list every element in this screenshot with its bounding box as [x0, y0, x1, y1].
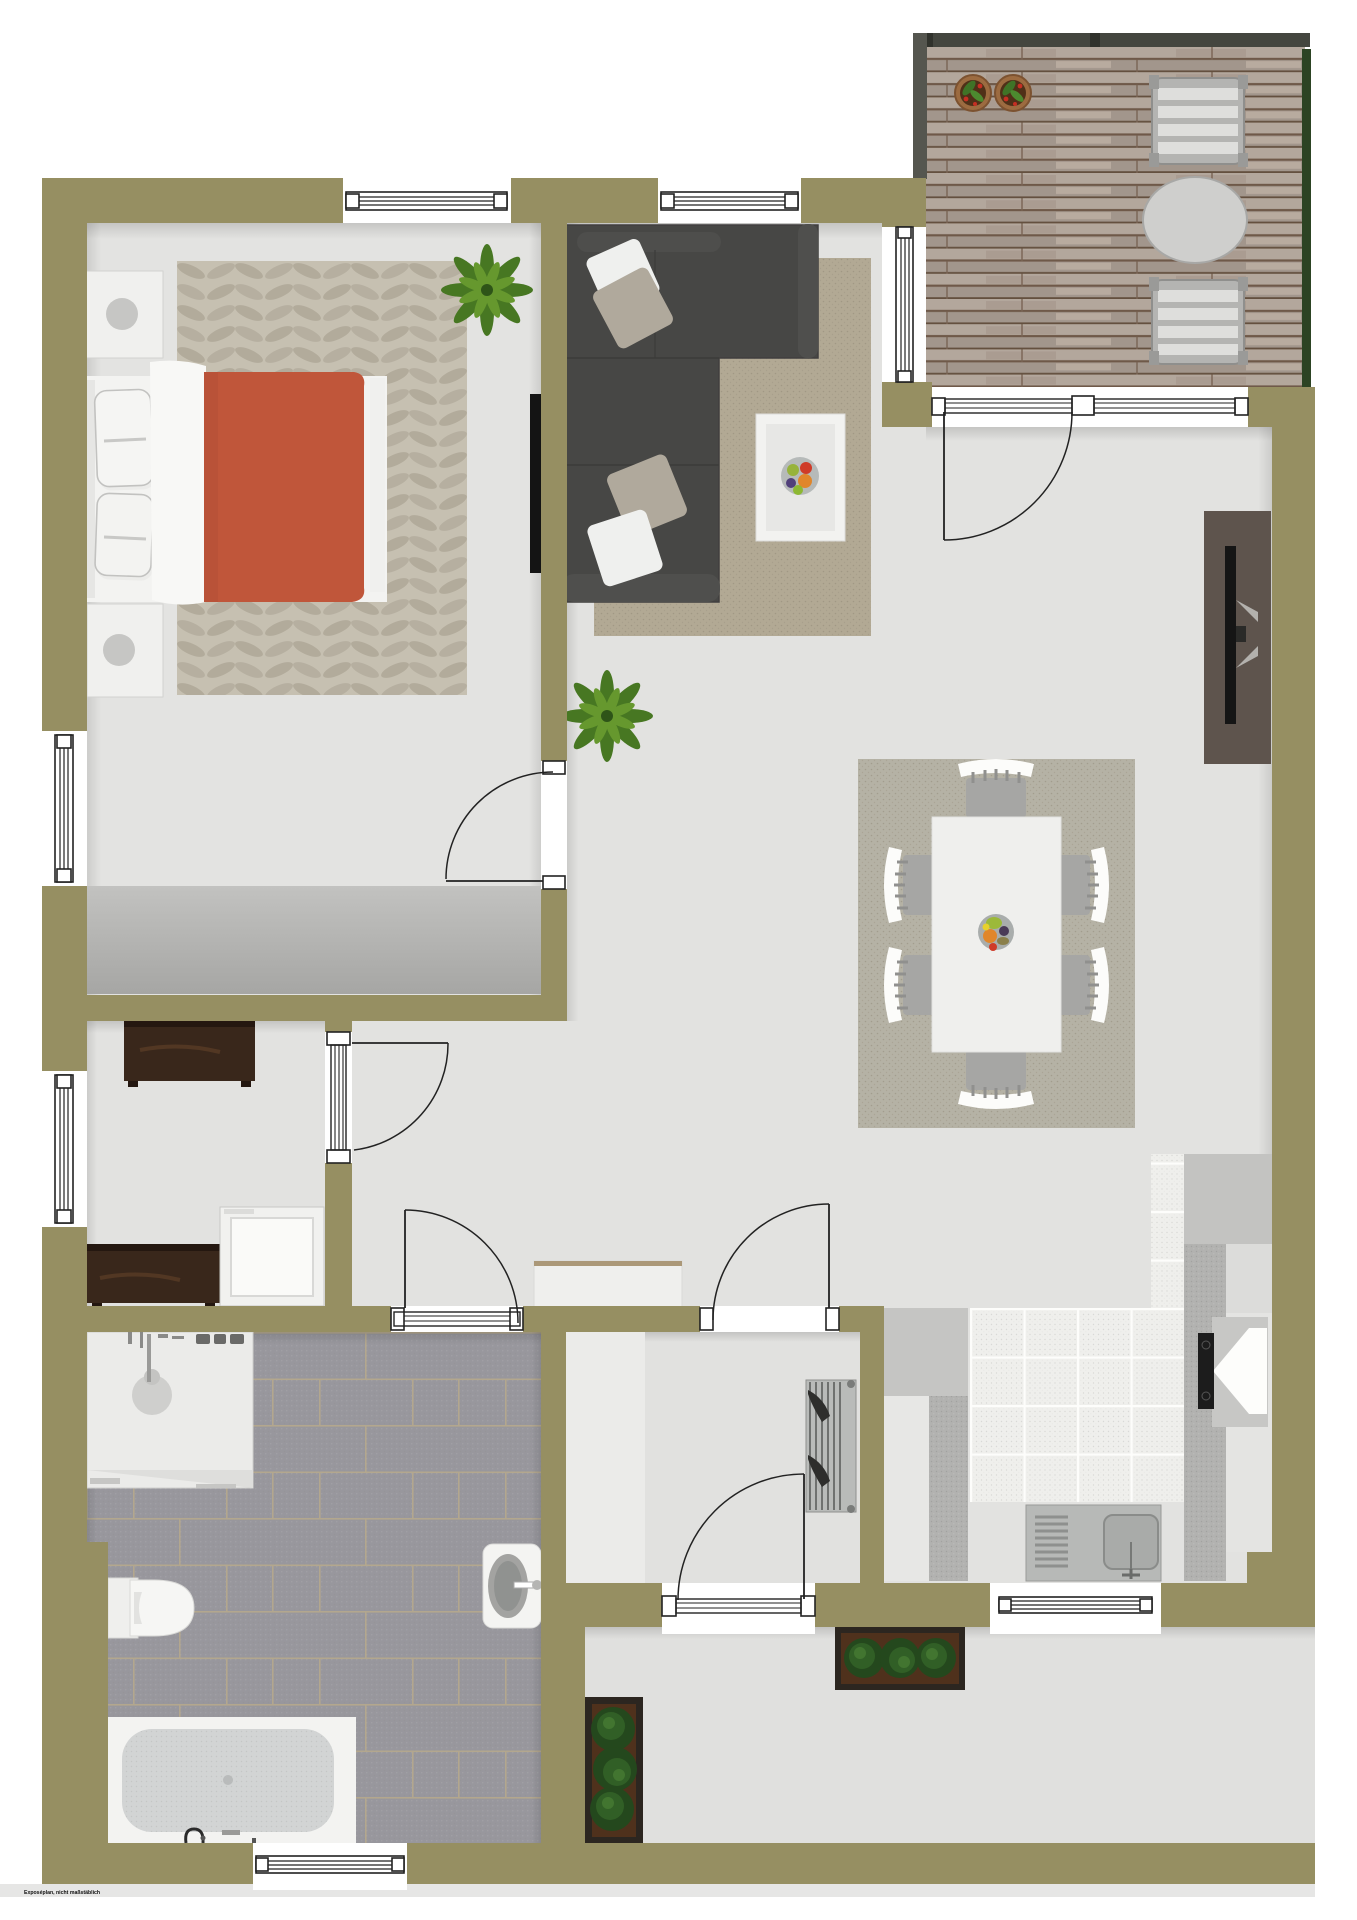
- svg-text:Exposéplan, nicht maßstäblich: Exposéplan, nicht maßstäblich: [24, 1890, 100, 1896]
